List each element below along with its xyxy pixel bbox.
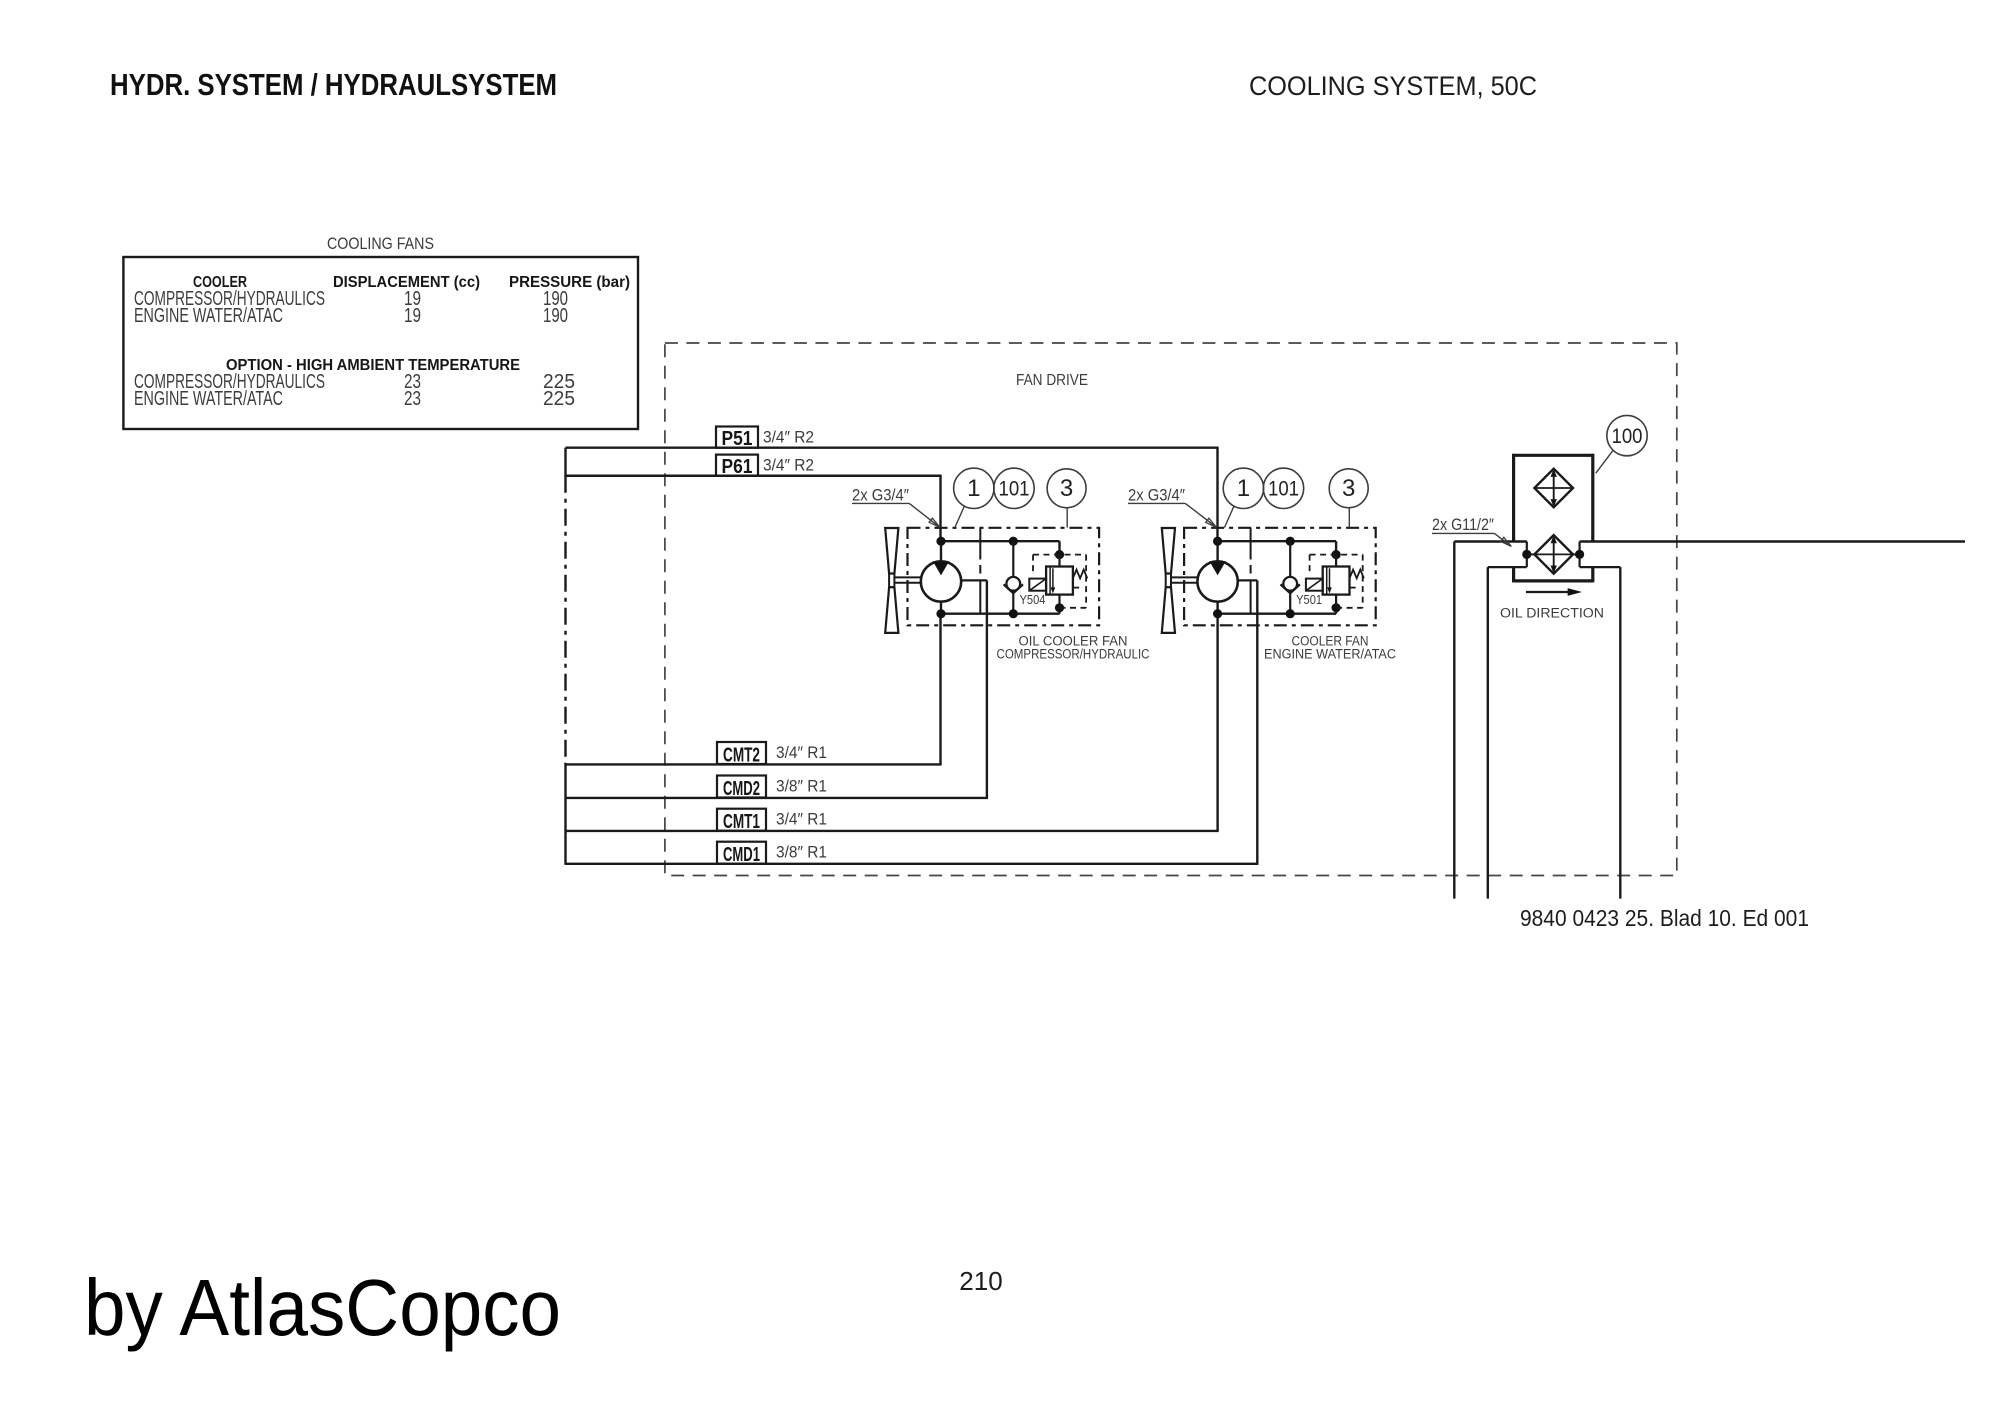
svg-text:3/4″ R1: 3/4″ R1 (776, 810, 827, 829)
svg-text:2x G3/4″: 2x G3/4″ (852, 486, 909, 505)
svg-text:ENGINE WATER/ATAC: ENGINE WATER/ATAC (1264, 646, 1396, 661)
svg-text:101: 101 (999, 477, 1030, 501)
svg-text:COMPRESSOR/HYDRAULIC: COMPRESSOR/HYDRAULIC (997, 646, 1150, 661)
svg-text:3/4″ R2: 3/4″ R2 (763, 428, 814, 447)
svg-text:HYDR. SYSTEM / HYDRAULSYSTEM: HYDR. SYSTEM / HYDRAULSYSTEM (110, 67, 557, 102)
svg-text:210: 210 (959, 1266, 1002, 1296)
svg-text:OIL DIRECTION: OIL DIRECTION (1500, 606, 1604, 621)
svg-text:FAN DRIVE: FAN DRIVE (1016, 372, 1088, 389)
svg-text:1: 1 (1237, 475, 1250, 502)
svg-text:3: 3 (1060, 475, 1073, 502)
svg-text:by AtlasCopco: by AtlasCopco (84, 1263, 561, 1352)
svg-text:Y504: Y504 (1020, 593, 1046, 607)
svg-text:190: 190 (543, 304, 568, 327)
svg-text:9840 0423 25. Blad 10. Ed 001: 9840 0423 25. Blad 10. Ed 001 (1520, 905, 1809, 931)
svg-text:CMD1: CMD1 (723, 844, 760, 866)
svg-text:100: 100 (1612, 424, 1643, 448)
svg-text:3/8″ R1: 3/8″ R1 (776, 843, 827, 862)
svg-text:CMT2: CMT2 (723, 744, 760, 766)
svg-text:225: 225 (543, 387, 575, 410)
svg-text:CMD2: CMD2 (723, 778, 760, 800)
svg-text:P51: P51 (722, 428, 753, 450)
svg-text:3/8″ R1: 3/8″ R1 (776, 777, 827, 796)
svg-text:Y501: Y501 (1296, 593, 1322, 607)
svg-text:3/4″ R1: 3/4″ R1 (776, 743, 827, 762)
svg-text:19: 19 (404, 304, 421, 327)
svg-text:COOLING FANS: COOLING FANS (327, 235, 434, 253)
svg-text:23: 23 (404, 387, 421, 410)
svg-text:2x G3/4″: 2x G3/4″ (1128, 486, 1185, 505)
svg-text:P61: P61 (722, 456, 753, 478)
svg-text:3/4″ R2: 3/4″ R2 (763, 456, 814, 475)
svg-text:ENGINE WATER/ATAC: ENGINE WATER/ATAC (134, 304, 283, 327)
svg-text:101: 101 (1268, 477, 1299, 501)
svg-text:COOLING SYSTEM, 50C: COOLING SYSTEM, 50C (1249, 71, 1537, 101)
svg-text:3: 3 (1342, 475, 1355, 502)
svg-text:2x G11/2″: 2x G11/2″ (1432, 515, 1494, 534)
svg-text:ENGINE WATER/ATAC: ENGINE WATER/ATAC (134, 387, 283, 410)
svg-text:1: 1 (967, 475, 980, 502)
svg-text:CMT1: CMT1 (723, 811, 760, 833)
svg-text:PRESSURE (bar): PRESSURE (bar) (509, 274, 630, 291)
